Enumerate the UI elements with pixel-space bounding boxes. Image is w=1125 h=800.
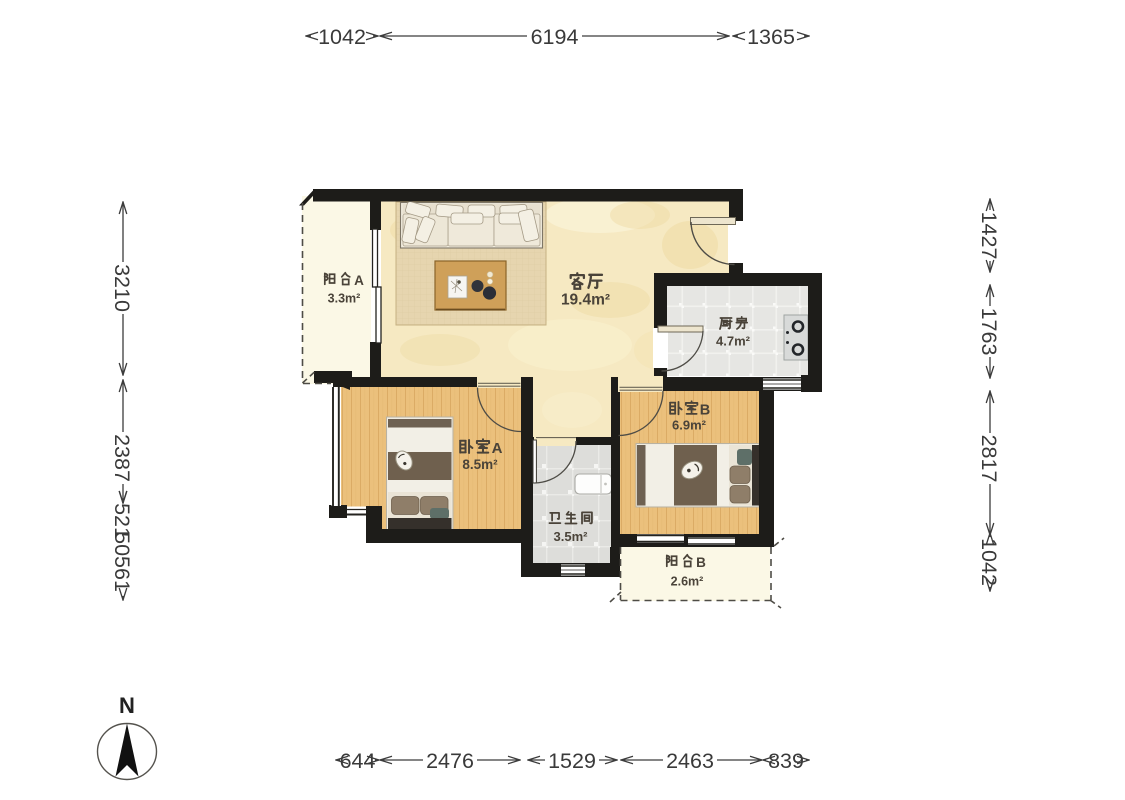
svg-text:N: N (119, 693, 135, 718)
svg-text:A: A (492, 440, 503, 457)
svg-text:6194: 6194 (531, 25, 579, 49)
svg-text:2817: 2817 (977, 435, 1001, 483)
svg-text:2476: 2476 (426, 749, 474, 773)
svg-text:1042: 1042 (977, 538, 1001, 586)
svg-text:1763: 1763 (977, 308, 1001, 356)
svg-text:3210: 3210 (110, 264, 134, 312)
svg-text:50561: 50561 (110, 532, 134, 592)
svg-text:4.7m²: 4.7m² (716, 334, 751, 349)
svg-text:B: B (700, 403, 710, 419)
svg-text:2387: 2387 (110, 434, 134, 482)
svg-text:1365: 1365 (747, 25, 795, 49)
svg-text:19.4m²: 19.4m² (561, 292, 610, 309)
svg-text:2.6m²: 2.6m² (671, 575, 704, 589)
svg-text:1427: 1427 (977, 212, 1001, 260)
svg-text:B: B (696, 555, 706, 570)
svg-text:839: 839 (768, 749, 804, 773)
svg-text:A: A (354, 273, 364, 288)
svg-text:3.3m²: 3.3m² (328, 292, 361, 306)
svg-text:1042: 1042 (318, 25, 366, 49)
svg-text:644: 644 (340, 749, 376, 773)
svg-text:8.5m²: 8.5m² (462, 457, 498, 472)
svg-text:6.9m²: 6.9m² (672, 418, 707, 433)
svg-text:1529: 1529 (548, 749, 596, 773)
svg-text:2463: 2463 (666, 749, 714, 773)
svg-text:3.5m²: 3.5m² (554, 529, 589, 544)
